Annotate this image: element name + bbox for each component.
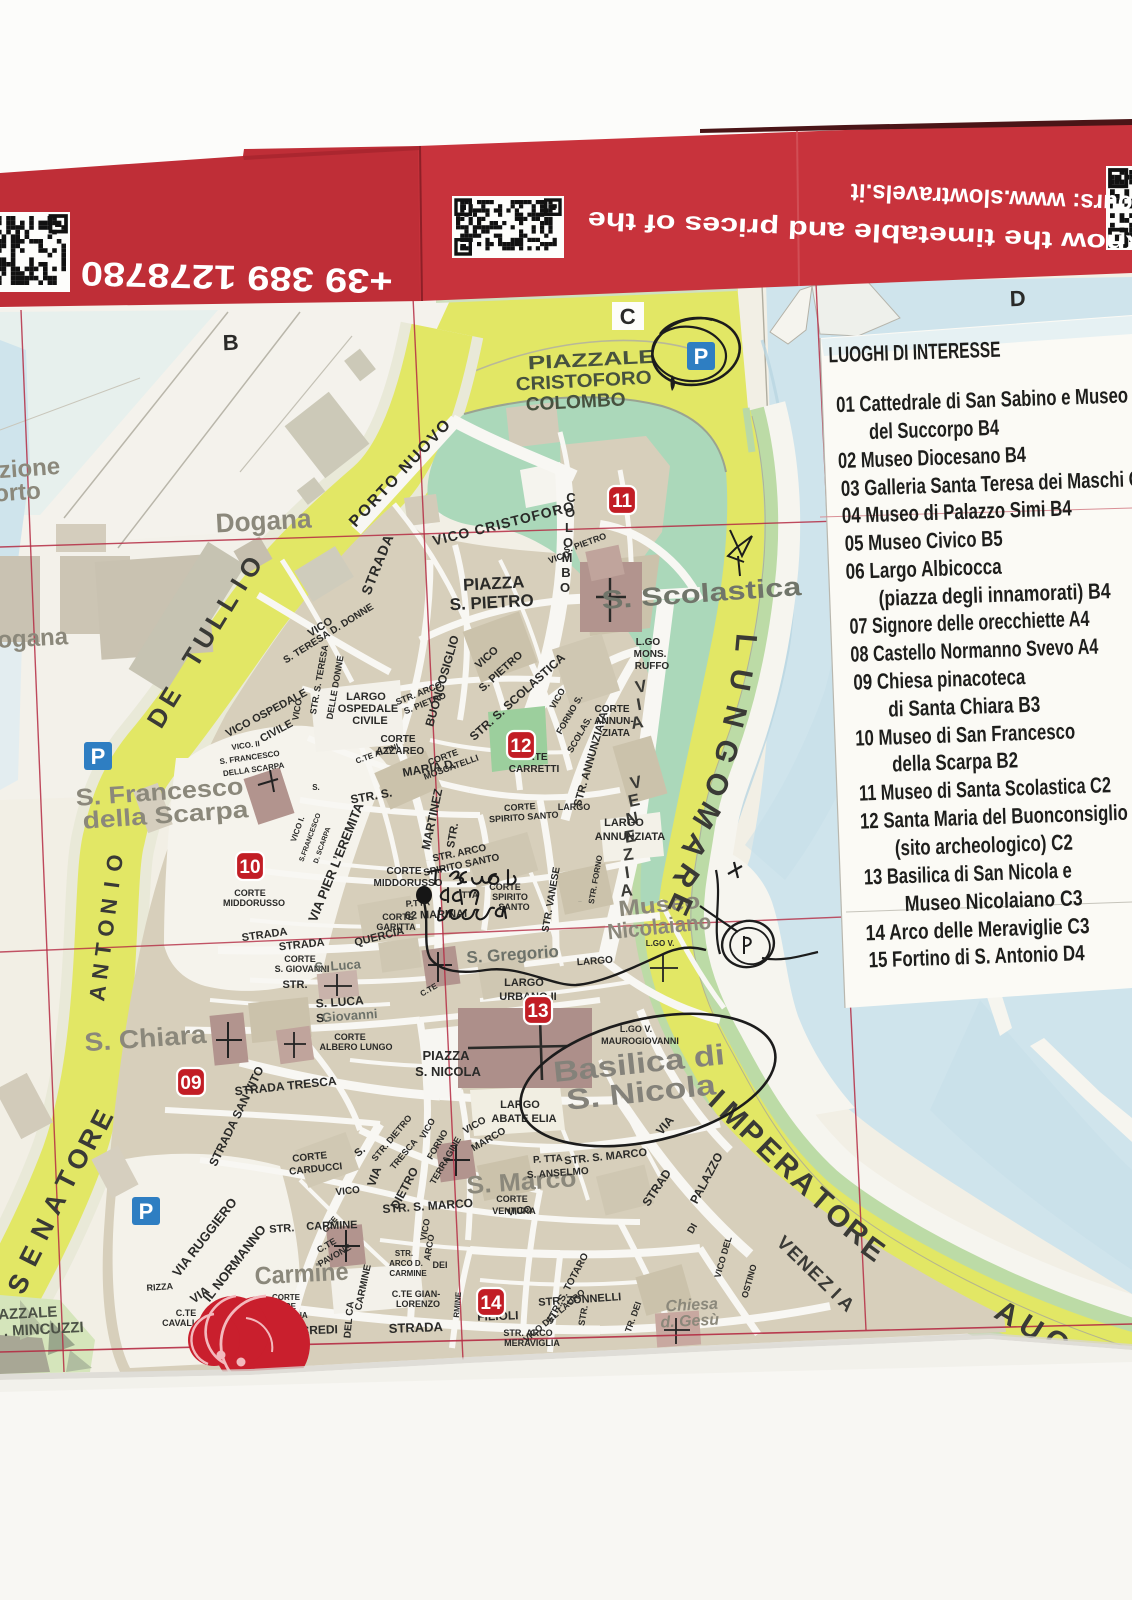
svg-text:14: 14 (480, 1293, 502, 1314)
svg-text:S.: S. (312, 783, 320, 792)
svg-text:B: B (561, 565, 570, 580)
svg-text:del Succorpo B4: del Succorpo B4 (869, 415, 1000, 444)
svg-text:CORTE: CORTE (496, 1194, 528, 1204)
svg-text:B: B (222, 330, 239, 356)
svg-text:A: A (619, 880, 633, 900)
svg-text:O: O (565, 505, 575, 520)
svg-text:STRADA: STRADA (389, 1319, 444, 1336)
svg-text:CORTE: CORTE (234, 888, 266, 898)
svg-text:CORTE: CORTE (284, 954, 316, 964)
svg-text:DEI: DEI (432, 1260, 447, 1270)
svg-text:CIVILE: CIVILE (352, 715, 387, 727)
svg-text:05 Museo Civico B5: 05 Museo Civico B5 (844, 526, 1003, 556)
svg-text:P: P (139, 1199, 154, 1224)
svg-text:C: C (619, 304, 636, 330)
svg-text:CORTE: CORTE (381, 734, 416, 745)
svg-text:L: L (728, 632, 762, 653)
svg-text:L: L (565, 520, 573, 535)
svg-text:LORENZO: LORENZO (396, 1299, 440, 1309)
svg-text:CARRETTI: CARRETTI (509, 764, 560, 775)
svg-text:Dogana: Dogana (215, 503, 313, 538)
svg-text:PIAZZA: PIAZZA (423, 1048, 471, 1063)
svg-text:Museo: Museo (578, 901, 582, 903)
svg-text:P. TTA: P. TTA (533, 1153, 563, 1166)
svg-text:S. NICOLA: S. NICOLA (415, 1064, 481, 1079)
svg-text:VENTURA: VENTURA (492, 1206, 536, 1216)
svg-text:LARGO: LARGO (504, 977, 544, 989)
svg-text:STR.: STR. (395, 1249, 413, 1258)
svg-text:STR.: STR. (269, 1222, 295, 1236)
svg-text:A: A (84, 983, 111, 1002)
svg-text:OSPEDALE: OSPEDALE (338, 703, 399, 715)
svg-text:MIDDORUSSO: MIDDORUSSO (374, 878, 443, 889)
svg-text:CORTE: CORTE (334, 1032, 366, 1042)
svg-text:d. Gesù: d. Gesù (660, 1311, 720, 1331)
svg-text:L.GO V.: L.GO V. (646, 939, 675, 948)
svg-text:CARMINE: CARMINE (389, 1269, 427, 1278)
svg-text:LARGO: LARGO (346, 691, 386, 703)
svg-text:STR.: STR. (282, 979, 307, 991)
svg-text:09: 09 (180, 1073, 201, 1094)
svg-text:10: 10 (239, 857, 260, 878)
svg-text:ANNUNZIATA: ANNUNZIATA (595, 831, 666, 843)
svg-text:N: N (87, 962, 114, 981)
svg-text:MERAVIGLIA: MERAVIGLIA (504, 1338, 560, 1348)
svg-text:STR. ARCO: STR. ARCO (503, 1328, 552, 1338)
svg-text:C.TE GIAN-: C.TE GIAN- (392, 1289, 441, 1299)
svg-text:SPIRITO: SPIRITO (492, 892, 528, 902)
svg-text:L.GO V.: L.GO V. (620, 1024, 652, 1034)
svg-text:13: 13 (527, 1001, 548, 1022)
svg-text:LARGO: LARGO (558, 802, 591, 812)
svg-text:MAUROGIOVANNI: MAUROGIOVANNI (601, 1036, 679, 1046)
svg-text:O: O (93, 918, 120, 938)
svg-text:12: 12 (510, 736, 531, 757)
svg-text:L.GO: L.GO (636, 637, 661, 648)
svg-text:RIZZA: RIZZA (146, 1281, 174, 1293)
svg-text:ALBERO LUNGO: ALBERO LUNGO (320, 1042, 393, 1052)
svg-text:della Scarpa B2: della Scarpa B2 (892, 747, 1019, 776)
svg-text:O: O (101, 853, 128, 873)
svg-text:C.TE: C.TE (176, 1308, 197, 1318)
svg-text:Carmine: Carmine (254, 1258, 349, 1291)
svg-text:LARGO: LARGO (604, 817, 644, 829)
svg-text:C: C (566, 490, 576, 505)
svg-text:D: D (1009, 286, 1026, 312)
svg-text:ARCO D.: ARCO D. (389, 1259, 423, 1268)
svg-text:di Santa Chiara B3: di Santa Chiara B3 (888, 692, 1041, 722)
svg-text:orto: orto (0, 477, 42, 507)
svg-text:O: O (560, 580, 570, 595)
svg-text:GARITTA: GARITTA (376, 922, 416, 932)
svg-text:MONS.: MONS. (634, 649, 667, 660)
svg-text:11: 11 (612, 491, 633, 512)
svg-text:ogana: ogana (0, 623, 69, 654)
svg-text:ZIATA: ZIATA (602, 728, 630, 739)
svg-text:MIDDORUSSO: MIDDORUSSO (223, 898, 285, 908)
svg-text:RUFFO: RUFFO (635, 661, 670, 672)
svg-text:P: P (694, 344, 709, 369)
svg-text:62 MARINAI: 62 MARINAI (405, 908, 468, 922)
svg-text:06 Largo Albicocca: 06 Largo Albicocca (845, 554, 1002, 584)
svg-text:CORTE: CORTE (387, 866, 422, 877)
svg-text:N: N (95, 897, 122, 916)
svg-text:P: P (91, 744, 106, 769)
